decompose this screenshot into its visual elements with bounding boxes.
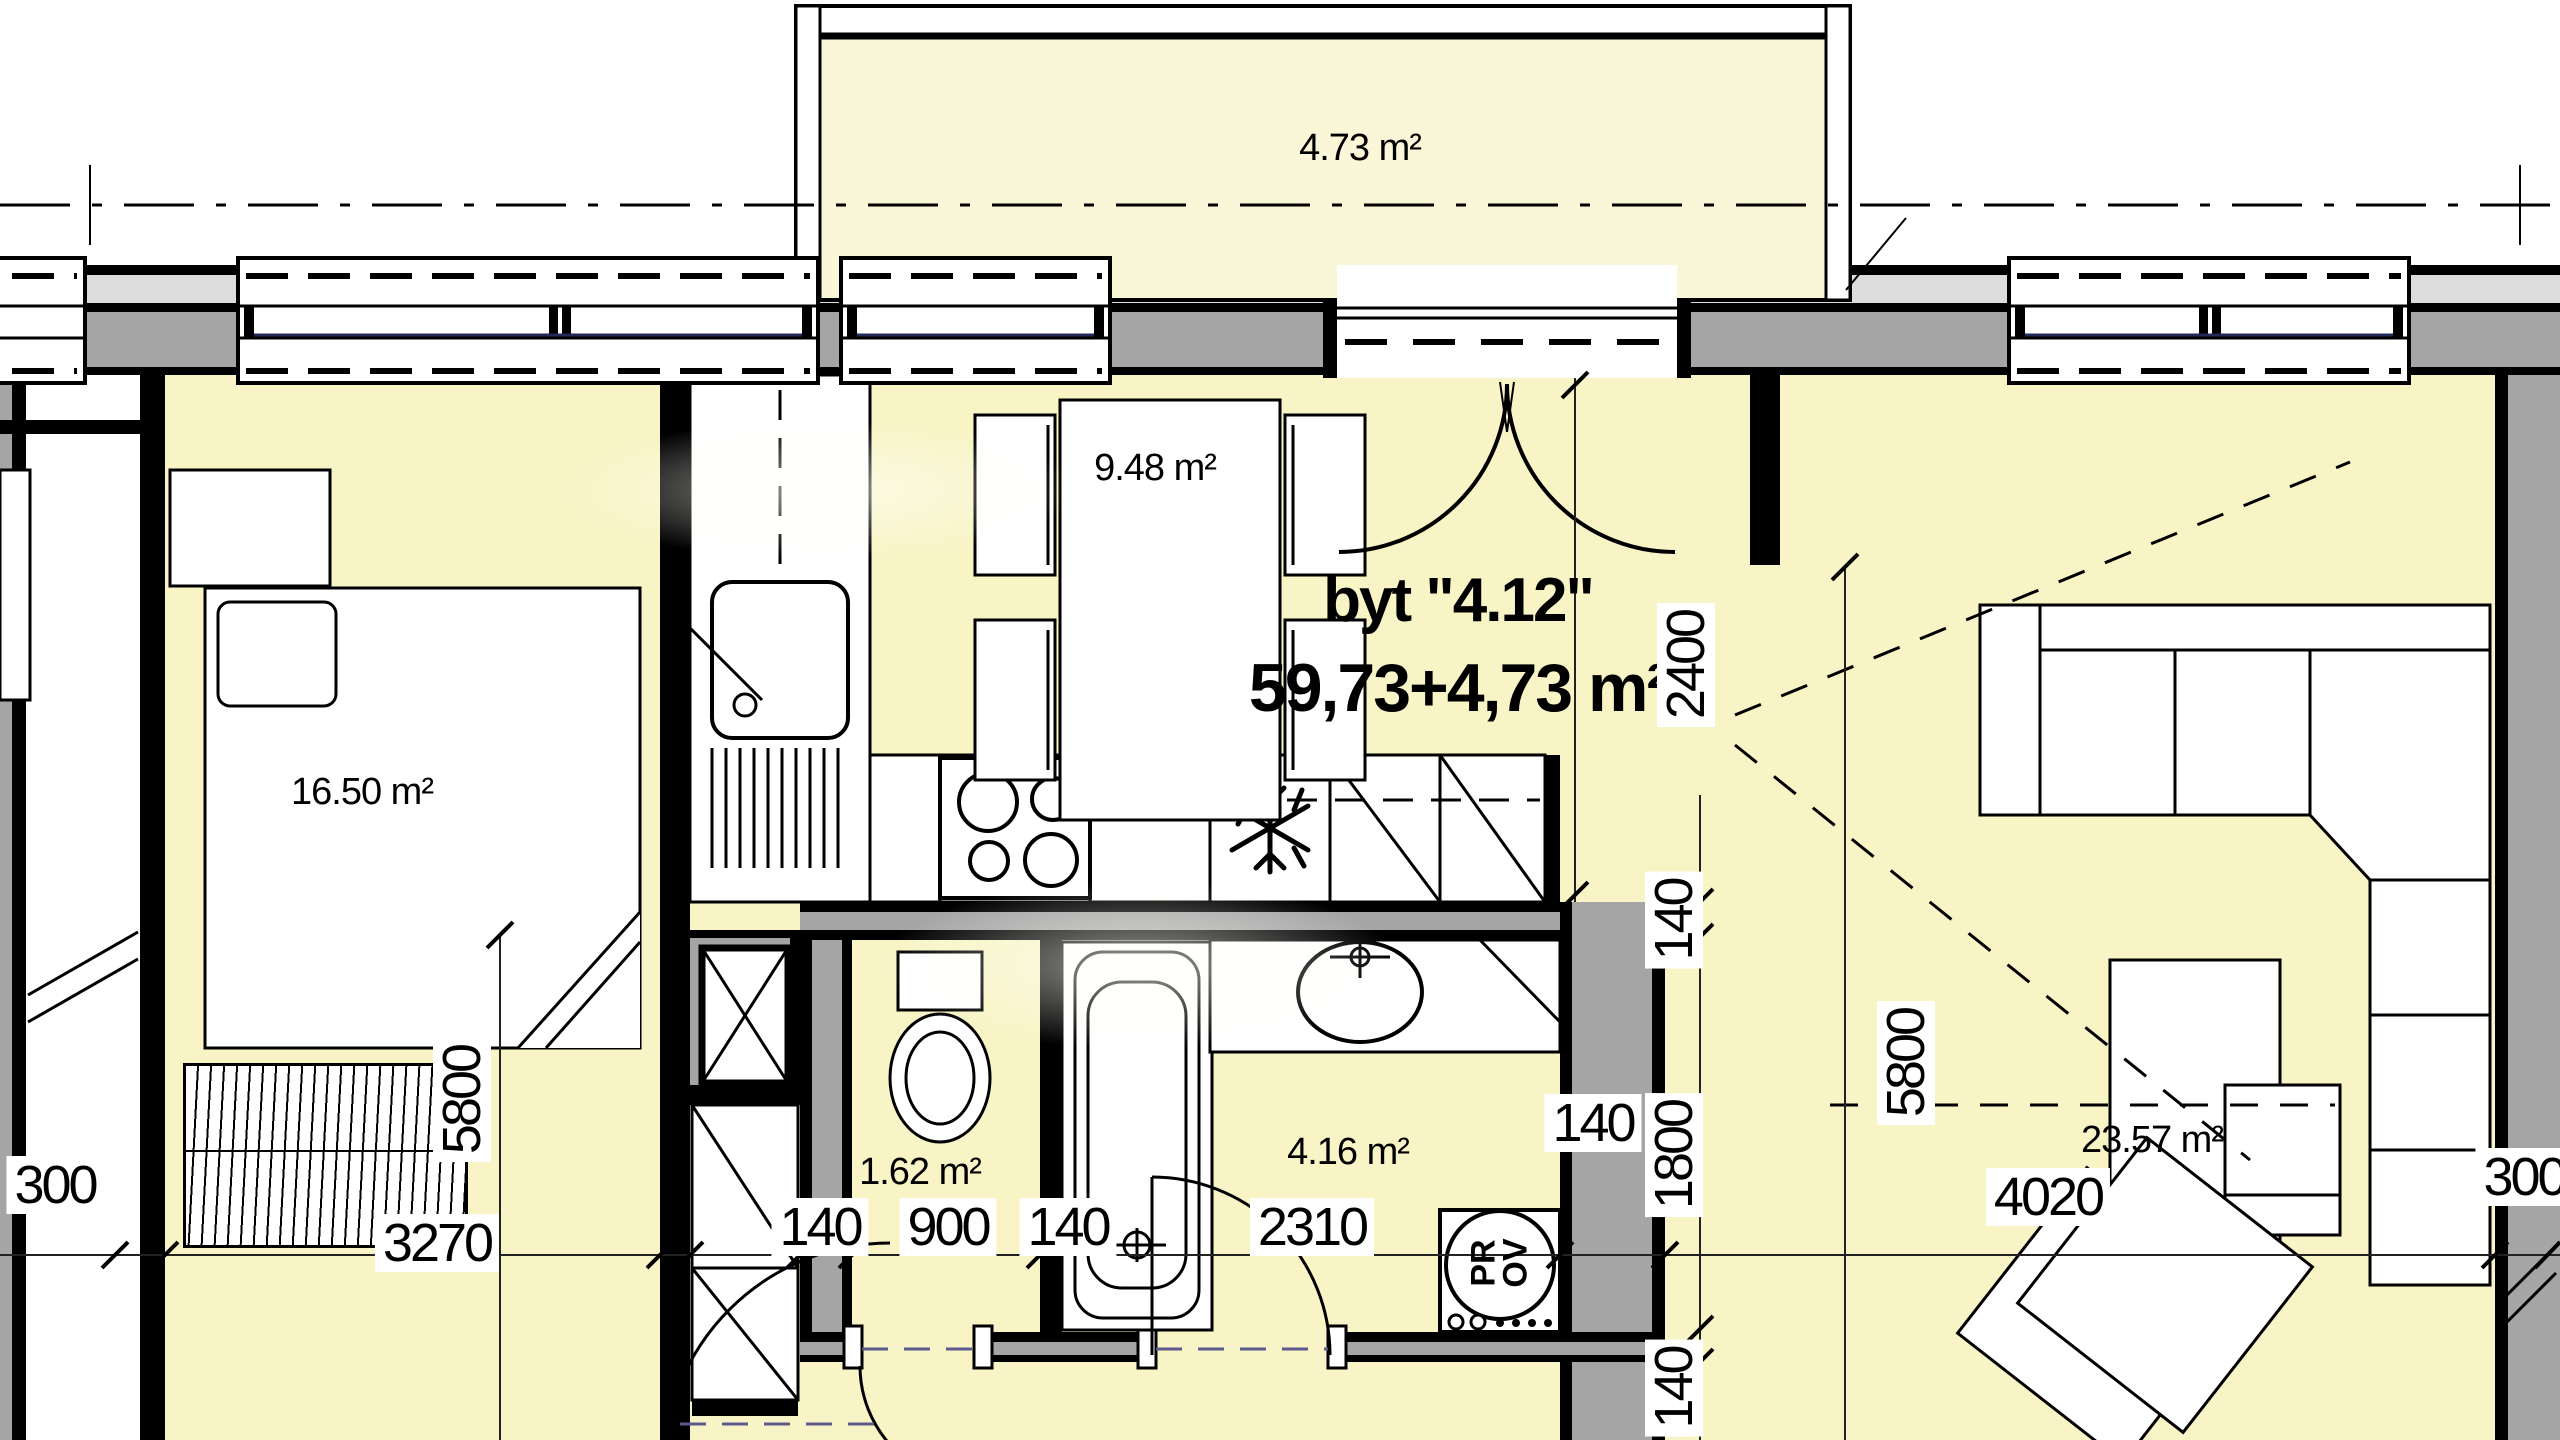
dim-wc-width: 900 [899,1198,996,1256]
dim-wall-wc-left: 140 [771,1198,868,1256]
sink-diameter-symbol: ø [676,609,692,635]
window-living [2009,258,2409,383]
exterior-wall-right [2495,375,2560,1440]
watermark [560,420,1080,560]
kitchen-sink [690,582,848,738]
living-area-label: 23.57 m² [2081,1121,2223,1159]
watermark [880,880,1400,1050]
wardrobe-rail [183,1150,462,1152]
dim-bathroom-width: 2310 [1250,1198,1374,1256]
apartment-area-total: 59,73+4,73 m² [1249,654,1667,722]
floorplan-canvas: 4.73 m² 16.50 m² 9.48 m² 1.62 m² 4.16 m²… [0,0,2560,1440]
hall-cabinets [692,1105,798,1416]
dim-ext-wall-right: 300 [2475,1148,2560,1206]
window-bedroom [238,258,818,383]
dim-wall-wc-bath: 140 [1019,1198,1116,1256]
partition-kitchen-living [1750,370,1780,565]
window-left-stub [0,258,85,383]
chair [975,620,1055,780]
dim-bath-depth: 1800 [1645,1093,1703,1217]
dim-bedroom-width: 3270 [375,1214,499,1272]
dim-kitchen-depth: 2400 [1657,603,1715,727]
bedroom-area-label: 16.50 m² [291,773,433,811]
dim-living-depth: 5800 [1877,1001,1935,1125]
dim-living-width: 4020 [1986,1168,2110,1226]
apartment-title: byt "4.12" [1323,570,1593,632]
washer-label: PROV [1468,1238,1533,1287]
window-kitchen [841,258,1110,383]
dim-bath-wall-top: 140 [1645,871,1703,968]
pillow [218,602,336,706]
nightstand [170,470,330,586]
dim-ext-wall-left: 300 [6,1156,103,1214]
exterior-wall-left [0,375,165,1440]
kitchen-area-label: 9.48 m² [1094,449,1216,487]
balcony-area-label: 4.73 m² [1299,129,1421,167]
bathroom-area-label: 4.16 m² [1287,1133,1409,1171]
dim-bath-wall-bottom: 140 [1645,1339,1703,1436]
wc-area-label: 1.62 m² [859,1153,981,1191]
dim-bedroom-depth: 5800 [433,1038,491,1162]
dim-wall-bath-right: 140 [1544,1094,1641,1152]
